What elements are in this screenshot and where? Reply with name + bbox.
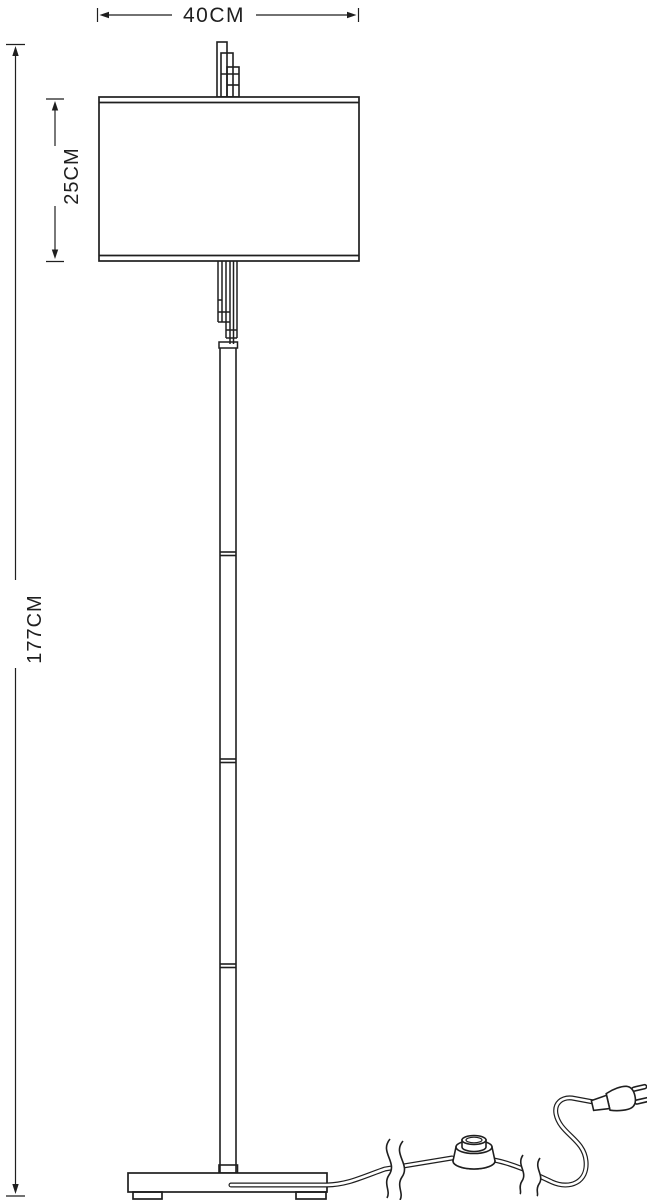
arrow-down-icon: [12, 1184, 18, 1194]
foot-switch: [453, 1136, 495, 1170]
pole-bottom-collar: [219, 1165, 238, 1173]
shade-height-dimension: 25CM: [46, 99, 83, 262]
arrow-right-icon: [347, 12, 357, 18]
total-height-label: 177CM: [24, 594, 46, 663]
pole-joint: [220, 552, 236, 556]
lamp-pole: [219, 348, 238, 1173]
base-foot-right: [296, 1192, 326, 1199]
lamp-dimension-diagram: 177CM 25CM 40CM: [0, 0, 647, 1200]
base-foot-left: [133, 1192, 162, 1199]
power-cord: [494, 1098, 599, 1185]
shade-height-label: 25CM: [61, 147, 83, 204]
pole-joint: [220, 759, 236, 763]
pole-top-cap: [219, 342, 238, 348]
lamp-shade: [99, 97, 359, 261]
width-dimension: 40CM: [98, 4, 359, 27]
plug-prong: [634, 1097, 647, 1104]
arrow-down-icon: [52, 250, 58, 260]
plug-prong: [632, 1084, 647, 1091]
total-height-dimension: 177CM: [6, 45, 46, 1197]
shade-bracket: [218, 261, 238, 348]
lamp-finial: [217, 42, 239, 97]
plug-cord-sleeve: [591, 1095, 610, 1112]
width-label: 40CM: [183, 4, 245, 27]
cord-break-mark: [520, 1155, 541, 1196]
drawing-canvas: 177CM 25CM 40CM: [0, 0, 647, 1200]
power-plug: [590, 1081, 647, 1117]
pole-joint: [220, 964, 236, 968]
